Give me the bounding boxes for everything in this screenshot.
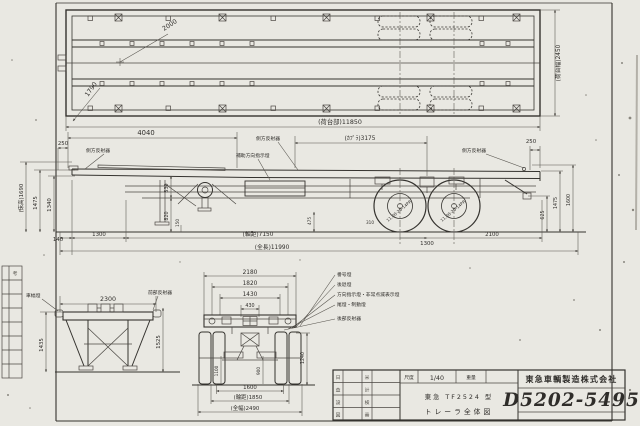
bed-length-label: (荷台部)11850 xyxy=(318,117,362,126)
h820-label: 820 xyxy=(164,211,170,220)
signoff-r2c1: 査 xyxy=(336,387,341,394)
signoff-r2c2: 計 xyxy=(365,387,370,394)
w1100-label: 1100 xyxy=(214,365,219,376)
overall-width-label: (全幅)2490 xyxy=(231,404,260,412)
w1430-label: 1430 xyxy=(243,292,258,298)
h530-label: 530 xyxy=(164,183,170,192)
bed-width-dim: (荷台幅)2450 xyxy=(540,10,562,116)
side-left-height-dims: (床高)1690 1475 1340 xyxy=(17,162,75,232)
h1340-label: 1340 xyxy=(47,198,53,212)
rear-top-dims: 2180 1820 1430 430 xyxy=(204,270,296,317)
side-deck xyxy=(69,165,540,181)
tire-size-label: 11.00-20-14PR xyxy=(385,199,412,223)
side-reflector-label: 側方反射器 xyxy=(86,147,110,154)
w900-label: 900 xyxy=(256,367,261,375)
license-plate-lamp-label: 番号燈 xyxy=(337,271,352,278)
signoff-r4c1: 図 xyxy=(336,413,341,419)
scale-value: 1/40 xyxy=(430,375,444,382)
side-callouts: 側方反射器 側方反射器 補助方向指示燈 側方反射器 xyxy=(85,135,526,180)
tail-brake-lamp-label: 尾燈・制動燈 xyxy=(337,301,366,308)
turn-signal-label: 方向指示燈・非常点滅表示燈 xyxy=(337,291,400,298)
radius-1790-label: 1790 xyxy=(84,81,99,98)
rear-suspension xyxy=(222,333,278,360)
signoff-table: 日 査 設 図 米 計 検 番 xyxy=(333,370,400,420)
rear-height-dim: 1240 xyxy=(296,333,310,385)
front-view: 2300 1435 1525 車幅燈 前部反射器 xyxy=(26,289,180,372)
rear-view: 2180 1820 1430 430 番号燈 後退燈 方向指示燈・非常点滅表示燈… xyxy=(192,270,400,416)
drawing-canvas: 考 xyxy=(0,0,640,426)
front-bolster xyxy=(55,304,161,320)
signoff-r1c1: 日 xyxy=(336,375,341,381)
tire-size-label: 11.00-20-14PR xyxy=(439,199,466,223)
sheet-border xyxy=(56,3,612,421)
side-mid-height-dims: 530 820 150 475 310 xyxy=(164,176,374,232)
plan-diagonal-dims: 2000 1790 xyxy=(73,18,179,121)
d140-label: 140 xyxy=(53,237,64,243)
dim-4040-label: 4040 xyxy=(137,129,154,137)
engineering-drawing-sheet: 考 xyxy=(0,0,640,426)
w1600-label: 1600 xyxy=(243,385,257,391)
drawing-title: トレーラ全体図 xyxy=(425,407,494,416)
rear-2100-label: 2100 xyxy=(485,232,499,238)
revision-strip: 考 xyxy=(2,266,22,378)
h475-label: 475 xyxy=(307,217,312,225)
toolbox xyxy=(245,181,305,196)
rear-1600-label: 1600 xyxy=(566,194,572,206)
signoff-r4c2: 番 xyxy=(365,412,370,419)
bed-width-label: (荷台幅)2450 xyxy=(554,44,562,81)
overall-length-label: (全長)11990 xyxy=(255,243,290,251)
h625-label: 625 xyxy=(540,210,546,219)
h1240-label: 1240 xyxy=(300,352,306,364)
front-legs xyxy=(66,320,150,370)
side-suspension xyxy=(375,177,464,193)
rear-reflector-label: 後部反射器 xyxy=(337,315,361,322)
dim-3175-label: (ｶﾌﾟﾗ)3175 xyxy=(345,135,376,142)
signoff-r1c2: 米 xyxy=(365,374,370,381)
title-right-section: 東急車輌製造株式会社 D5202-5495 xyxy=(502,374,640,412)
front-coupler xyxy=(58,55,66,71)
title-block: 日 査 設 図 米 計 検 番 尺度 1/40 重量 東急 TF2524 型 ト… xyxy=(333,370,640,420)
wheelbase-label: (軸距)7150 xyxy=(243,230,274,238)
weight-label: 重量 xyxy=(466,374,476,381)
scale-weight-row: 尺度 1/40 重量 xyxy=(400,370,518,383)
drawing-number: D5202-5495 xyxy=(502,390,640,411)
left-1300-label: 1300 xyxy=(92,232,106,238)
strip-header-label: 考 xyxy=(13,271,18,277)
rear-bottom-dims: 1600 (輪距)1850 (全幅)2490 xyxy=(198,384,302,416)
side-bottom-dims: 140 1300 (軸距)7150 1300 2100 (全長)11990 xyxy=(53,180,578,255)
side-reflector-label: 側方反射器 xyxy=(462,147,486,154)
model-designation: 東急 TF2524 型 xyxy=(425,392,493,401)
rear-body xyxy=(204,315,296,334)
company-name: 東急車輌製造株式会社 xyxy=(526,374,618,384)
signoff-r3c2: 検 xyxy=(365,399,370,406)
track-label: (輪距)1850 xyxy=(234,393,263,401)
top-plan-view: 2000 1790 (荷台部)11850 (荷台幅)2450 xyxy=(58,10,562,131)
side-reflector-label: 側方反射器 xyxy=(256,135,280,142)
front-250-label: 250 xyxy=(58,141,69,147)
side-rear-height-dims: 625 1475 1600 xyxy=(528,165,576,232)
d310-label: 310 xyxy=(366,220,374,225)
side-view: 11.00-20-14PR 11.00-20-14PR 250 xyxy=(17,129,586,255)
scale-label: 尺度 xyxy=(404,374,414,381)
rear-250-label: 250 xyxy=(526,139,537,145)
w1820-label: 1820 xyxy=(243,281,258,287)
axle-1300-label: 1300 xyxy=(420,241,434,247)
h1435-label: 1435 xyxy=(39,338,45,352)
front-reflector-label: 前部反射器 xyxy=(148,289,172,296)
radius-2000-label: 2000 xyxy=(161,18,178,33)
rear-1475-label: 1475 xyxy=(553,197,559,209)
h1525-label: 1525 xyxy=(156,335,162,349)
width-lamp-label: 車幅燈 xyxy=(26,292,41,299)
reverse-lamp-label: 後退燈 xyxy=(337,281,352,288)
h1475-label: 1475 xyxy=(33,196,39,210)
aux-turn-signal-label: 補助方向指示燈 xyxy=(236,152,270,159)
w430-label: 430 xyxy=(245,303,254,309)
rear-underride xyxy=(505,180,531,199)
rear-lamp-callouts: 番号燈 後退燈 方向指示燈・非常点滅表示燈 尾燈・制動燈 後部反射器 xyxy=(284,271,400,330)
floor-height-label: (床高)1690 xyxy=(17,183,25,212)
w2300-label: 2300 xyxy=(100,296,116,303)
signoff-r3c1: 設 xyxy=(336,399,341,406)
w2180-label: 2180 xyxy=(243,270,258,276)
clearance-150-label: 150 xyxy=(175,219,180,227)
